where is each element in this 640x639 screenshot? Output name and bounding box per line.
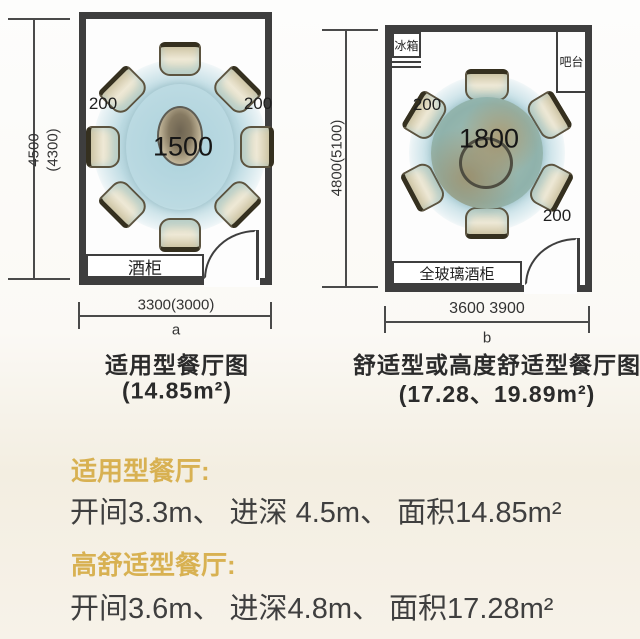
right-dim-height-label: 4800(5100): [329, 120, 348, 197]
glass-wine-cabinet-label: 全玻璃酒柜: [419, 263, 494, 284]
right-dim-tick-left: [384, 306, 386, 333]
right-door-leaf: [577, 238, 580, 287]
bar-counter: 吧台: [556, 32, 585, 93]
right-door-opening: [524, 284, 577, 294]
chair-icon: [86, 126, 120, 168]
note-heading-comfort: 高舒适型餐厅:: [71, 545, 236, 582]
wine-cabinet-label: 酒柜: [128, 254, 162, 279]
note-body-comfort: 开间3.6m、 进深4.8m、 面积17.28m²: [70, 585, 553, 627]
note-heading-standard: 适用型餐厅:: [71, 451, 210, 488]
chair-icon: [159, 218, 201, 252]
left-dim-tick-right: [270, 302, 272, 329]
right-dim-width-label: 3600 3900: [449, 300, 525, 318]
left-dim-height-label: 4500 (4300): [25, 128, 63, 171]
right-gap-top-label: 200: [413, 95, 441, 115]
right-dim-extension-bottom: [322, 286, 378, 288]
bar-counter-label: 吧台: [559, 53, 583, 70]
left-gap-right-label: 200: [244, 94, 272, 114]
right-caption-area: (17.28、19.89m²): [399, 375, 596, 409]
left-caption-area: (14.85m²): [122, 378, 232, 405]
left-door-leaf: [256, 230, 259, 280]
left-dim-width-label: 3300(3000): [138, 297, 215, 314]
glass-wine-cabinet: 全玻璃酒柜: [392, 261, 522, 285]
left-gap-left-label: 200: [89, 94, 117, 114]
right-dim-width-line: [385, 321, 590, 323]
fridge-label: 冰箱: [394, 37, 418, 54]
left-dim-height-alt: (4300): [44, 128, 63, 171]
right-dim-tick-right: [588, 306, 590, 333]
left-table-size-label: 1500: [153, 132, 213, 163]
left-dim-width-line: [79, 315, 272, 317]
fridge-counter-line: [392, 61, 421, 63]
fridge: 冰箱: [392, 32, 421, 58]
left-dim-tick-left: [78, 302, 80, 329]
right-dim-extension-top: [322, 29, 378, 31]
fridge-counter-line: [392, 66, 421, 68]
right-table-size-label: 1800: [459, 124, 519, 155]
right-axis-marker: b: [483, 330, 491, 347]
left-caption-title: 适用型餐厅图: [105, 346, 249, 380]
left-dim-height-value: 4500: [25, 128, 44, 171]
wine-cabinet: 酒柜: [86, 254, 204, 278]
chair-icon: [465, 207, 509, 239]
left-axis-marker: a: [172, 322, 180, 339]
chair-icon: [159, 42, 201, 76]
infographic-dining-room-plans: 4500 (4300) 1500 200 200 酒柜 3300(3000) a…: [0, 0, 640, 639]
right-gap-bottom-label: 200: [543, 206, 571, 226]
note-body-standard: 开间3.3m、 进深 4.5m、 面积14.85m²: [70, 489, 562, 531]
left-dim-extension-top: [8, 18, 70, 20]
left-dim-extension-bottom: [8, 278, 70, 280]
chair-icon: [240, 126, 274, 168]
